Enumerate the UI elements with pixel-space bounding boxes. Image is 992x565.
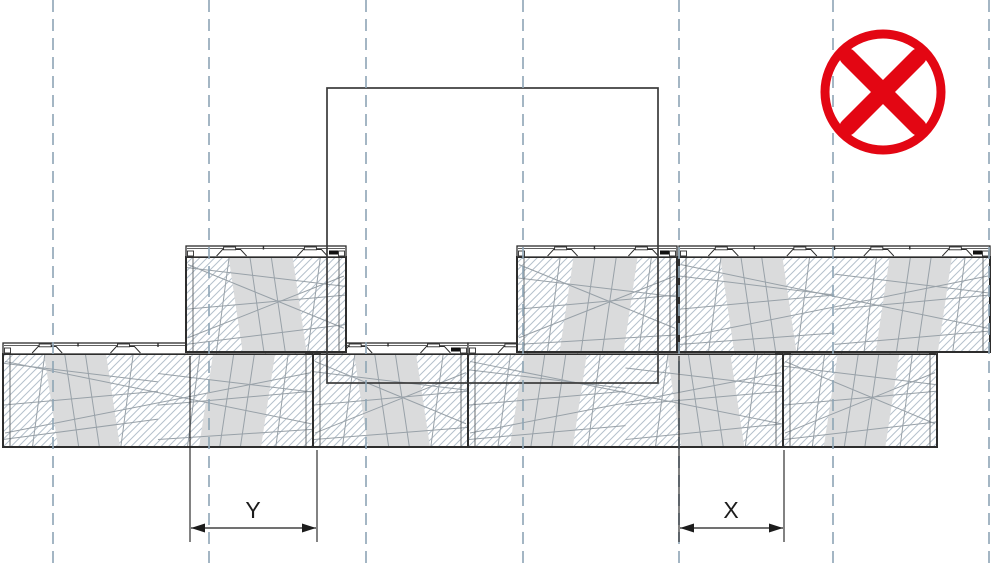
lower-course	[3, 343, 937, 447]
drawing-canvas: YX	[0, 0, 992, 565]
wall-block	[517, 246, 677, 352]
dimension-label: X	[723, 497, 738, 523]
block-texture	[517, 257, 677, 352]
lip-notch	[420, 347, 450, 354]
block-texture	[3, 354, 313, 447]
arrowhead-left	[191, 524, 205, 533]
wall-block	[783, 343, 937, 447]
block-top-lip	[517, 246, 677, 257]
lip-notch	[864, 250, 894, 257]
dimension-label: Y	[245, 497, 260, 523]
lip-insert-mark	[973, 251, 982, 255]
arrowhead-right	[769, 524, 783, 533]
upper-course	[186, 246, 990, 352]
wall-block	[186, 246, 346, 352]
block-texture	[679, 257, 990, 352]
block-top-lip	[679, 246, 990, 257]
wall-block	[3, 343, 313, 447]
block-texture	[468, 354, 783, 447]
block-texture	[186, 257, 346, 352]
lip-notch	[110, 347, 140, 354]
arrowhead-right	[302, 524, 316, 533]
lip-notch	[942, 250, 972, 257]
block-texture	[783, 354, 937, 447]
lip-notch	[708, 250, 738, 257]
lip-notch	[217, 250, 247, 257]
lip-notch	[297, 250, 327, 257]
lip-notch	[548, 250, 578, 257]
block-texture	[313, 354, 468, 447]
prohibition-icon	[825, 34, 941, 150]
wall-block	[679, 246, 990, 352]
block-top-lip	[186, 246, 346, 257]
block-installation-diagram: YX	[0, 0, 992, 565]
lip-notch	[628, 250, 658, 257]
lip-notch	[32, 347, 62, 354]
lip-insert-mark	[451, 348, 460, 352]
arrowhead-left	[680, 524, 694, 533]
lip-insert-mark	[660, 251, 669, 255]
wall-block	[313, 343, 468, 447]
lip-insert-mark	[329, 251, 338, 255]
wall-block	[468, 343, 783, 447]
lip-notch	[787, 250, 817, 257]
